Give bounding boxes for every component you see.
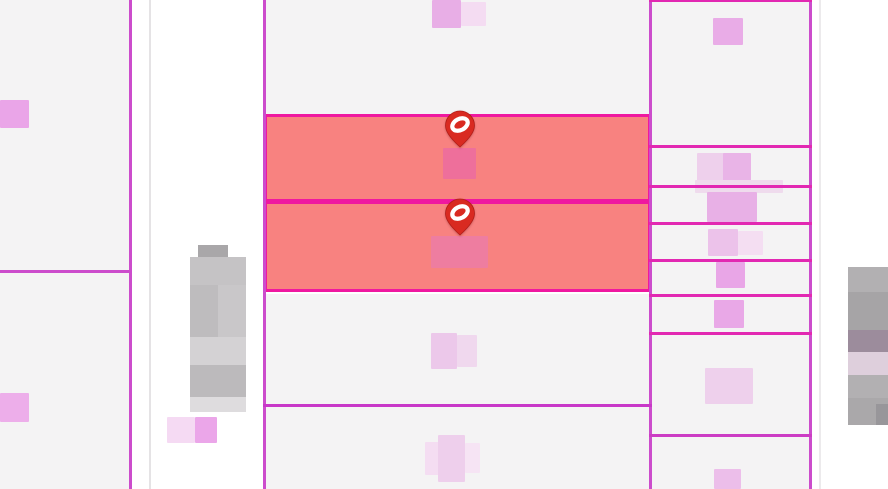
parcel-label-redacted	[461, 2, 486, 26]
parcel-label-redacted	[465, 443, 480, 473]
parcel-label-redacted	[0, 100, 29, 128]
parcel-label-redacted	[443, 148, 476, 179]
boundary-line	[129, 0, 132, 489]
redacted-text-block	[190, 337, 246, 365]
parcel-label-redacted	[714, 469, 741, 489]
parcel[interactable]	[0, 273, 129, 489]
redacted-text-block	[876, 404, 888, 425]
parcel-label-redacted	[738, 231, 763, 255]
boundary-line-faint	[149, 0, 151, 489]
parcel-label-redacted	[457, 335, 477, 367]
parcel-label-redacted	[716, 262, 745, 288]
redacted-text-block	[848, 292, 888, 330]
map-canvas[interactable]	[0, 0, 888, 489]
parcel-label-redacted	[431, 333, 457, 369]
location-pin-icon	[444, 198, 476, 236]
parcel-label-redacted	[707, 192, 757, 222]
parcel-label-redacted	[432, 0, 461, 28]
boundary-line-faint	[819, 0, 821, 489]
parcel-label-redacted	[713, 18, 743, 45]
boundary-line	[809, 0, 812, 489]
parcel-label-redacted	[705, 368, 753, 404]
parcel-label-redacted	[438, 435, 465, 482]
parcel-label-redacted	[697, 153, 724, 183]
parcel-label-redacted	[195, 417, 217, 443]
parcel-label-redacted	[167, 417, 195, 443]
redacted-text-block	[848, 267, 888, 292]
redacted-text-block	[848, 352, 888, 375]
parcel-label-redacted	[425, 442, 439, 475]
redacted-text-block	[198, 245, 228, 257]
location-pin[interactable]	[444, 110, 476, 148]
redacted-text-block	[848, 375, 888, 398]
location-pin[interactable]	[444, 198, 476, 236]
redacted-text-block	[848, 330, 888, 352]
parcel-label-redacted	[714, 300, 744, 328]
parcel-label-redacted	[708, 229, 738, 256]
parcel[interactable]	[0, 0, 129, 270]
redacted-text-block	[190, 285, 218, 337]
location-pin-icon	[444, 110, 476, 148]
redacted-text-block	[190, 257, 246, 285]
redacted-text-block	[190, 365, 246, 397]
parcel-label-redacted	[0, 393, 29, 422]
parcel-label-redacted	[431, 236, 488, 268]
redacted-text-block	[190, 397, 246, 412]
